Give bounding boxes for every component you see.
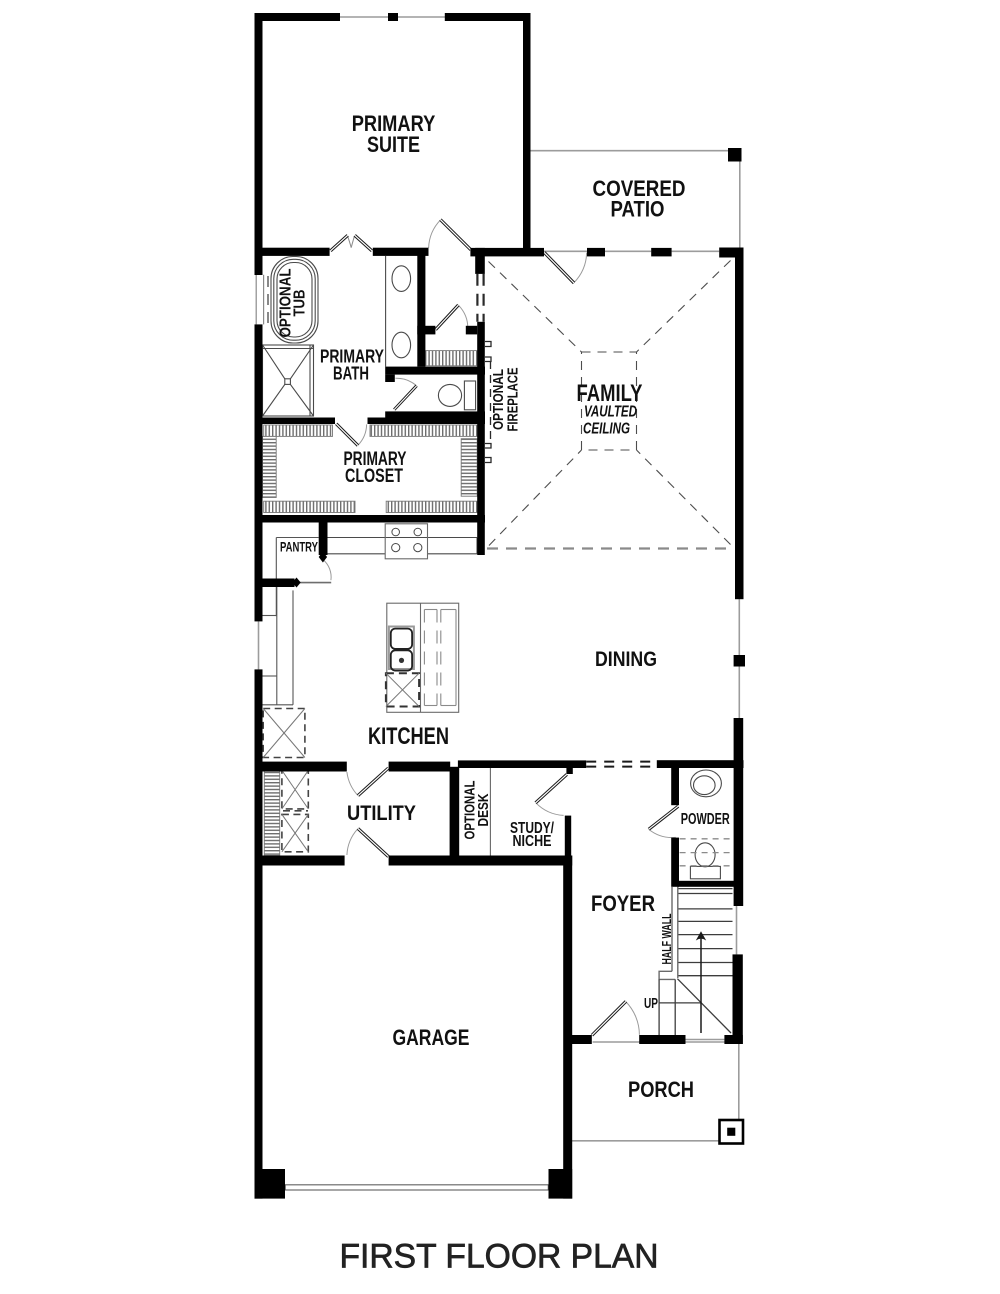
svg-text:POWDER: POWDER [681, 811, 730, 828]
svg-text:FIREPLACE: FIREPLACE [506, 367, 522, 431]
svg-text:FOYER: FOYER [591, 891, 655, 916]
svg-text:DINING: DINING [595, 647, 657, 671]
svg-text:VAULTED: VAULTED [584, 404, 637, 421]
svg-text:NICHE: NICHE [513, 833, 552, 850]
svg-text:HALF WALL: HALF WALL [659, 913, 674, 964]
svg-text:CLOSET: CLOSET [345, 466, 403, 487]
svg-text:UP: UP [644, 996, 658, 1012]
svg-text:BATH: BATH [333, 363, 369, 384]
svg-text:DESK: DESK [476, 793, 492, 826]
svg-text:CEILING: CEILING [583, 421, 630, 438]
svg-text:PANTRY: PANTRY [280, 539, 318, 555]
svg-text:GARAGE: GARAGE [393, 1025, 470, 1050]
svg-text:SUITE: SUITE [367, 132, 420, 157]
svg-text:UTILITY: UTILITY [347, 801, 416, 825]
svg-text:FIRST FLOOR PLAN: FIRST FLOOR PLAN [340, 1238, 659, 1276]
svg-text:KITCHEN: KITCHEN [368, 723, 449, 750]
svg-text:PATIO: PATIO [611, 197, 665, 222]
svg-text:TUB: TUB [292, 290, 309, 317]
svg-text:PORCH: PORCH [628, 1077, 694, 1102]
